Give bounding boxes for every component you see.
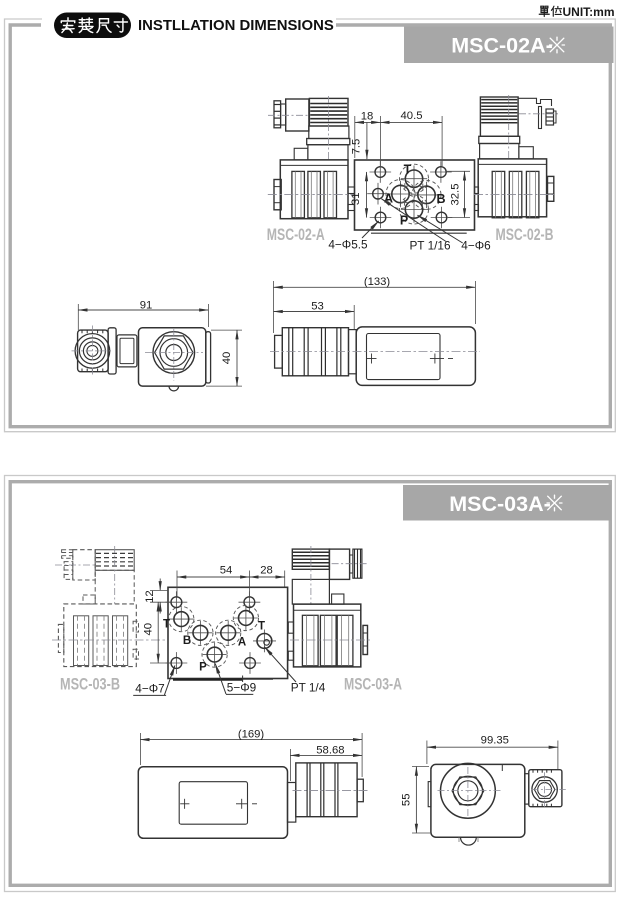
svg-text:MSC-03A-: MSC-03A-	[449, 492, 551, 516]
svg-text:MSC-02-B: MSC-02-B	[496, 226, 554, 244]
svg-text:18: 18	[361, 110, 374, 122]
svg-text:MSC-03-B: MSC-03-B	[60, 676, 120, 694]
svg-text:55: 55	[400, 794, 412, 807]
svg-text:UNIT:mm: UNIT:mm	[563, 5, 615, 19]
svg-text:(169): (169)	[238, 728, 265, 740]
svg-text:B: B	[183, 635, 191, 647]
svg-text:B: B	[436, 192, 445, 206]
svg-text:40: 40	[221, 352, 233, 365]
svg-text:12: 12	[144, 590, 156, 603]
svg-text:T: T	[404, 163, 412, 177]
svg-text:(133): (133)	[364, 276, 391, 288]
svg-text:MSC-02A-: MSC-02A-	[451, 34, 553, 58]
svg-text:4−Φ5.5: 4−Φ5.5	[328, 237, 368, 251]
svg-text:40.5: 40.5	[401, 110, 423, 122]
svg-text:P: P	[199, 662, 207, 674]
svg-text:7.5: 7.5	[351, 139, 363, 155]
svg-text:40: 40	[142, 623, 154, 636]
svg-text:T: T	[258, 621, 265, 633]
svg-text:4−Φ6: 4−Φ6	[461, 239, 491, 253]
svg-text:54: 54	[220, 564, 233, 576]
svg-text:5−Φ9: 5−Φ9	[227, 681, 256, 695]
svg-text:32.5: 32.5	[450, 184, 462, 206]
svg-text:58.68: 58.68	[316, 744, 344, 756]
svg-text:T: T	[163, 619, 170, 631]
svg-text:A: A	[238, 637, 246, 649]
svg-text:91: 91	[140, 299, 153, 311]
svg-text:INSTLLATION DIMENSIONS: INSTLLATION DIMENSIONS	[138, 18, 334, 34]
svg-text:99.35: 99.35	[481, 735, 509, 747]
svg-text:53: 53	[311, 301, 324, 313]
svg-text:31: 31	[350, 193, 362, 206]
svg-text:PT 1/16: PT 1/16	[409, 239, 451, 253]
svg-text:MSC-03-A: MSC-03-A	[344, 676, 402, 694]
svg-text:28: 28	[260, 564, 273, 576]
svg-text:PT 1/4: PT 1/4	[291, 680, 326, 694]
svg-text:4−Φ7: 4−Φ7	[135, 682, 164, 696]
svg-text:MSC-02-A: MSC-02-A	[267, 226, 325, 244]
